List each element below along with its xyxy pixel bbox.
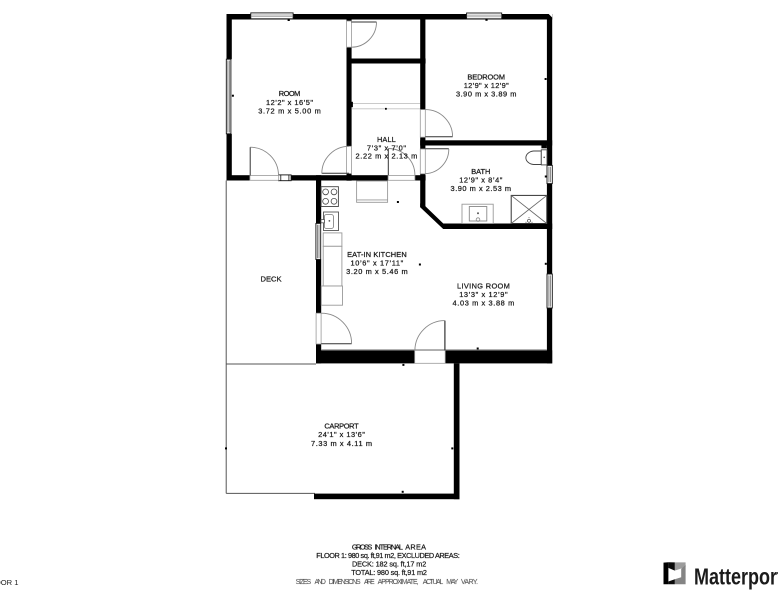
svg-text:FLOOR 1: 980 sq. ft,91 m2, EXC: FLOOR 1: 980 sq. ft,91 m2, EXCLUDED AREA… bbox=[316, 551, 460, 560]
svg-text:2.22 m x 2.13 m: 2.22 m x 2.13 m bbox=[356, 152, 418, 161]
svg-text:3.90 m x 3.89 m: 3.90 m x 3.89 m bbox=[456, 90, 517, 99]
svg-text:DECK: DECK bbox=[261, 275, 282, 284]
svg-text:Matterport: Matterport bbox=[694, 563, 778, 589]
svg-text:4.03 m x 3.88 m: 4.03 m x 3.88 m bbox=[453, 298, 515, 307]
svg-text:TOTAL: 980 sq. ft,91 m2: TOTAL: 980 sq. ft,91 m2 bbox=[351, 568, 427, 577]
svg-text:ROOM: ROOM bbox=[279, 89, 301, 98]
svg-text:12’2" x 16’5": 12’2" x 16’5" bbox=[266, 98, 313, 107]
svg-text:CARPORT: CARPORT bbox=[324, 421, 359, 430]
svg-text:FLOOR 1: FLOOR 1 bbox=[0, 578, 19, 587]
svg-text:3.20 m x 5.46 m: 3.20 m x 5.46 m bbox=[346, 267, 408, 276]
svg-text:SIZESANDDIMENSIONSAREAPPROXIMA: SIZESANDDIMENSIONSAREAPPROXIMATE,ACTUALM… bbox=[296, 579, 478, 586]
svg-text:3.90 m x 2.53 m: 3.90 m x 2.53 m bbox=[451, 184, 512, 193]
svg-text:24’1" x 13’6": 24’1" x 13’6" bbox=[318, 430, 365, 439]
svg-text:7.33 m x 4.11 m: 7.33 m x 4.11 m bbox=[311, 439, 372, 448]
svg-text:3.72 m x 5.00 m: 3.72 m x 5.00 m bbox=[258, 107, 321, 116]
